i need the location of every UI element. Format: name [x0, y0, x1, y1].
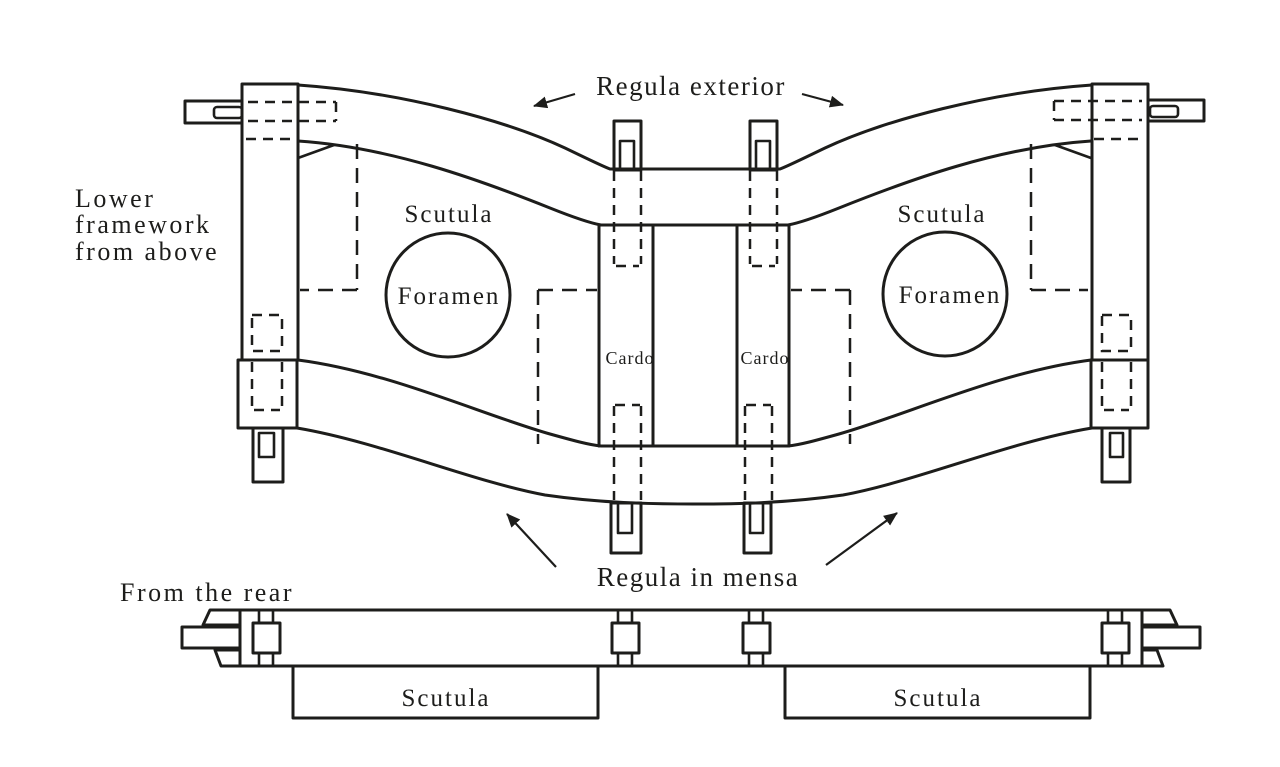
regula-in-mensa-arrow-right — [826, 513, 897, 565]
scutula-label-rear-left: Scutula — [402, 685, 491, 712]
scutula-label-rear-right: Scutula — [894, 685, 983, 712]
cardo-bottom-tenons — [611, 503, 771, 553]
right-post-tenon-slot — [1110, 433, 1123, 457]
catapult-framework-figure: Lower framework from above Regula exteri… — [0, 0, 1280, 767]
rear-view-diagram: From the rear Scutula — [120, 578, 1200, 718]
regula-exterior-arrow-left — [534, 94, 575, 106]
left-side-post — [185, 84, 334, 482]
foramen-label-right: Foramen — [899, 282, 1002, 309]
rear-pin-blocks — [253, 611, 1129, 665]
right-joint-chamfer — [1055, 145, 1091, 158]
top-view-caption-line3: from above — [75, 237, 219, 266]
right-side-bar-tip — [1150, 106, 1178, 117]
cardo-label-left: Cardo — [606, 348, 655, 368]
regula-in-mensa-label: Regula in mensa — [597, 562, 799, 592]
right-post-tenon — [1102, 428, 1130, 482]
rear-left-end-fittings — [182, 610, 240, 666]
scutula-label-top-right: Scutula — [898, 201, 987, 228]
scutula-label-top-left: Scutula — [405, 201, 494, 228]
regula-exterior-arrow-right — [802, 94, 843, 105]
top-view-caption-line2: framework — [75, 210, 212, 239]
cardo-label-right: Cardo — [741, 348, 790, 368]
right-side-post — [1055, 84, 1204, 482]
cardo-top-tenons — [614, 121, 777, 170]
left-post-tenon — [253, 428, 283, 482]
rear-left-side-bar — [182, 627, 240, 648]
left-joint-chamfer — [298, 145, 334, 158]
framework-diagram-canvas: Lower framework from above Regula exteri… — [0, 0, 1280, 767]
cardo-bar-left — [599, 225, 653, 446]
top-view-caption-line1: Lower — [75, 184, 155, 213]
rear-view-caption: From the rear — [120, 578, 294, 607]
regula-in-mensa-outline — [297, 360, 1092, 504]
foramen-label-left: Foramen — [398, 283, 501, 310]
rear-right-side-bar — [1142, 627, 1200, 648]
left-post-tenon-slot — [259, 433, 274, 457]
rear-right-end-fittings — [1142, 610, 1200, 666]
regula-exterior-label: Regula exterior — [596, 71, 786, 101]
rear-beam — [240, 610, 1142, 666]
left-side-bar-tip — [214, 107, 242, 118]
regula-in-mensa-arrow-left — [507, 514, 556, 567]
hidden-joint-lines — [246, 101, 1144, 500]
top-view-diagram: Lower framework from above Regula exteri… — [75, 71, 1204, 592]
